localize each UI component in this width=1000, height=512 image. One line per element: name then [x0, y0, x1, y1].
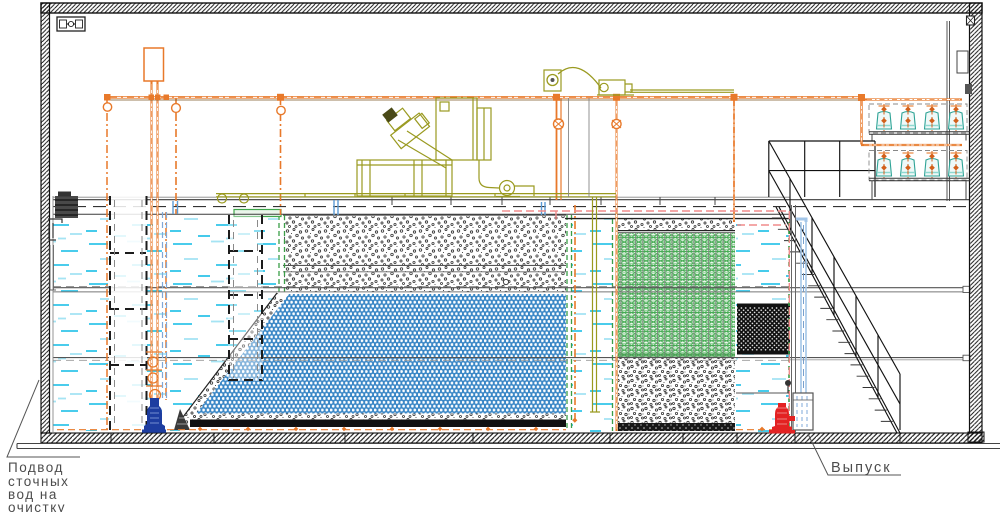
- svg-text:Выпуск: Выпуск: [831, 460, 892, 476]
- svg-text:Подвод: Подвод: [8, 460, 64, 475]
- svg-text:очистку: очистку: [8, 500, 66, 512]
